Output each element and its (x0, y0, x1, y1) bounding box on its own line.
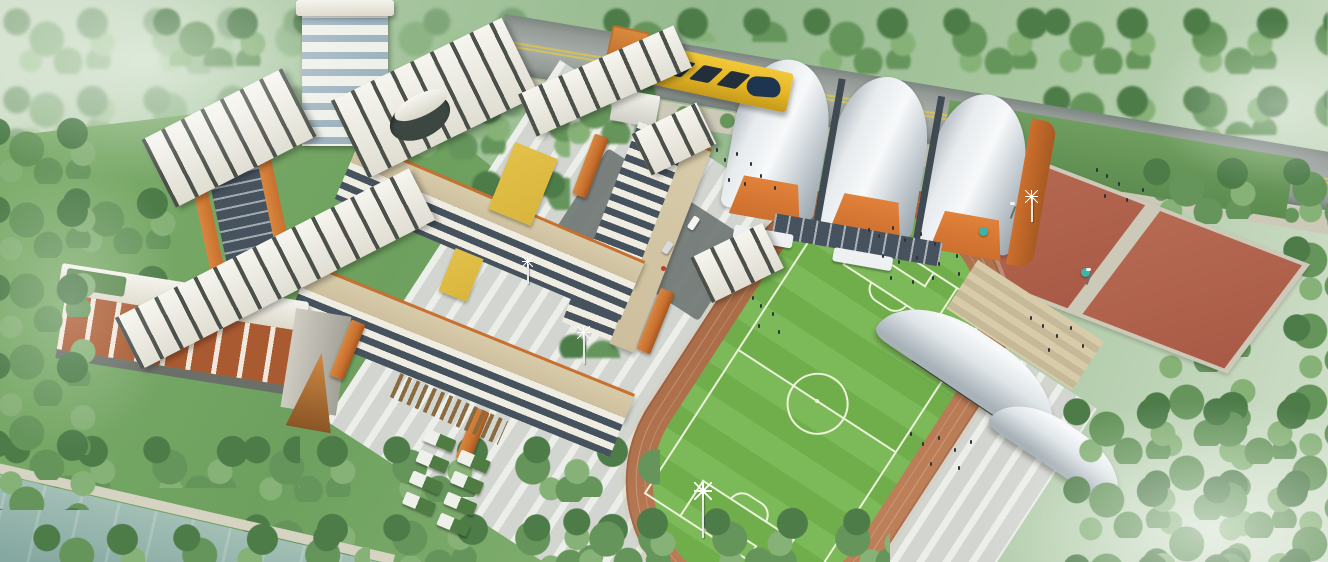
tree-grove-below-courts (1060, 390, 1328, 562)
campus-aerial-rendering (0, 0, 1328, 562)
stand-side-crowd (1030, 316, 1032, 320)
gate-emblem (746, 76, 781, 98)
plaza-lamp-head (522, 256, 533, 267)
planter (402, 491, 437, 515)
floodlight-head-west (577, 326, 590, 339)
center-circle (775, 361, 861, 447)
court-lamp-head-1 (1010, 202, 1015, 205)
tree-grove-left-edge (0, 110, 110, 510)
court-lamp-head-2 (1086, 268, 1091, 271)
track-west-crowd (752, 296, 754, 300)
south-plaza-crowd (910, 432, 912, 436)
plaza-lamp-pole (527, 264, 529, 284)
planter (450, 470, 485, 494)
planter (457, 449, 492, 473)
planter (443, 491, 478, 515)
floodlight-pole-south (702, 494, 704, 538)
courts-crowd (1096, 168, 1098, 172)
tree-grove-river-south-bank (30, 516, 370, 562)
red-sculpture (661, 266, 666, 271)
gate-louver-slot-3 (689, 65, 724, 83)
high-rise-roof-cap (296, 0, 394, 16)
tree-grove-track-southwest (560, 500, 890, 562)
gate-crowd (716, 148, 718, 152)
planter (409, 470, 444, 494)
teal-umbrella-west (979, 227, 988, 236)
floodlight-head-south (694, 482, 712, 500)
courts-highmast-head (1025, 190, 1038, 203)
plaza-crowd (868, 228, 870, 232)
planter (415, 449, 450, 473)
gate-louver-slot-4 (716, 71, 751, 89)
